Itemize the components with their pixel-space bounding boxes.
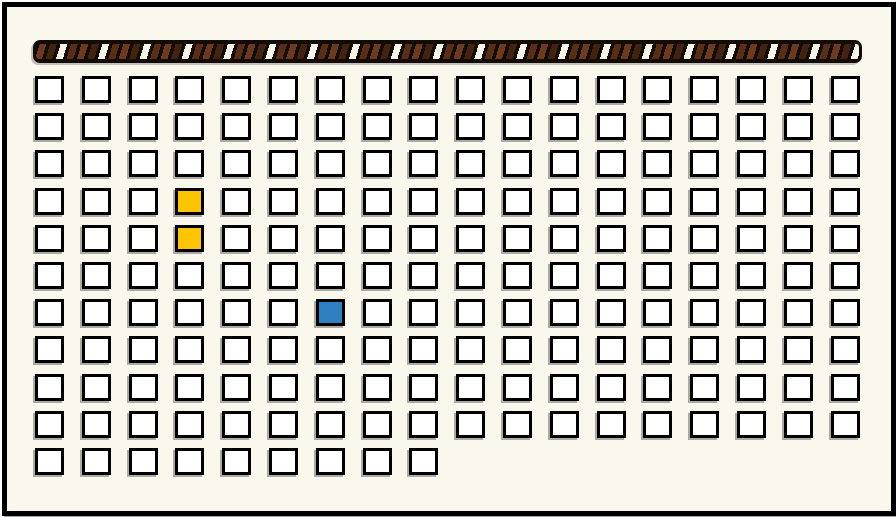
grid-cell[interactable]: [597, 299, 626, 326]
grid-cell[interactable]: [222, 448, 251, 475]
grid-cell[interactable]: [643, 150, 672, 177]
grid-cell[interactable]: [129, 113, 158, 140]
grid-cell[interactable]: [831, 299, 860, 326]
grid-cell[interactable]: [784, 374, 813, 401]
grid-cell[interactable]: [82, 374, 111, 401]
grid-cell[interactable]: [690, 113, 719, 140]
grid-cell[interactable]: [222, 113, 251, 140]
grid-cell[interactable]: [456, 299, 485, 326]
grid-cell[interactable]: [316, 225, 345, 252]
grid-cell[interactable]: [129, 262, 158, 289]
grid-cell[interactable]: [550, 262, 579, 289]
grid-cell[interactable]: [316, 374, 345, 401]
grid-cell[interactable]: [363, 262, 392, 289]
grid-cell[interactable]: [316, 76, 345, 103]
grid-cell[interactable]: [831, 225, 860, 252]
grid-cell[interactable]: [550, 113, 579, 140]
grid-cell[interactable]: [269, 448, 298, 475]
grid-cell[interactable]: [409, 225, 438, 252]
grid-cell[interactable]: [222, 76, 251, 103]
grid-cell[interactable]: [82, 225, 111, 252]
grid-cell[interactable]: [784, 225, 813, 252]
grid-cell[interactable]: [737, 262, 766, 289]
grid-cell[interactable]: [409, 448, 438, 475]
grid-cell[interactable]: [35, 188, 64, 215]
grid-cell[interactable]: [597, 225, 626, 252]
grid-cell[interactable]: [82, 336, 111, 363]
grid-cell[interactable]: [831, 374, 860, 401]
grid-cell[interactable]: [363, 374, 392, 401]
grid-cell[interactable]: [597, 76, 626, 103]
grid-cell[interactable]: [175, 150, 204, 177]
grid-cell[interactable]: [784, 411, 813, 438]
grid-cell[interactable]: [690, 150, 719, 177]
grid-cell[interactable]: [643, 262, 672, 289]
grid-cell[interactable]: [784, 76, 813, 103]
grid-cell[interactable]: [222, 411, 251, 438]
grid-cell[interactable]: [363, 113, 392, 140]
grid-cell[interactable]: [503, 113, 532, 140]
grid-cell[interactable]: [222, 150, 251, 177]
grid-cell[interactable]: [737, 188, 766, 215]
grid-cell[interactable]: [35, 299, 64, 326]
grid-cell[interactable]: [35, 225, 64, 252]
grid-cell[interactable]: [316, 336, 345, 363]
grid-cell[interactable]: [409, 411, 438, 438]
grid-cell[interactable]: [690, 76, 719, 103]
grid-cell[interactable]: [269, 411, 298, 438]
grid-cell[interactable]: [35, 150, 64, 177]
grid-cell[interactable]: [643, 225, 672, 252]
grid-cell[interactable]: [831, 76, 860, 103]
grid-cell[interactable]: [129, 374, 158, 401]
grid-cell[interactable]: [82, 411, 111, 438]
grid-cell[interactable]: [690, 262, 719, 289]
grid-cell[interactable]: [784, 299, 813, 326]
grid-cell[interactable]: [503, 188, 532, 215]
grid-cell[interactable]: [129, 299, 158, 326]
grid-cell[interactable]: [316, 150, 345, 177]
grid-cell[interactable]: [35, 262, 64, 289]
grid-cell[interactable]: [82, 448, 111, 475]
grid-cell[interactable]: [597, 262, 626, 289]
grid-cell[interactable]: [456, 225, 485, 252]
grid-cell[interactable]: [737, 299, 766, 326]
grid-cell[interactable]: [316, 411, 345, 438]
grid-cell[interactable]: [269, 262, 298, 289]
grid-cell[interactable]: [269, 113, 298, 140]
grid-cell[interactable]: [503, 299, 532, 326]
grid-cell[interactable]: [35, 411, 64, 438]
grid-cell[interactable]: [737, 374, 766, 401]
blue-cell[interactable]: [316, 299, 345, 326]
grid-cell[interactable]: [597, 411, 626, 438]
grid-cell[interactable]: [550, 411, 579, 438]
grid-cell[interactable]: [690, 188, 719, 215]
grid-cell[interactable]: [690, 411, 719, 438]
grid-cell[interactable]: [737, 76, 766, 103]
grid-cell[interactable]: [222, 336, 251, 363]
grid-cell[interactable]: [784, 188, 813, 215]
grid-cell[interactable]: [597, 113, 626, 140]
grid-cell[interactable]: [363, 150, 392, 177]
grid-cell[interactable]: [316, 262, 345, 289]
grid-cell[interactable]: [503, 411, 532, 438]
grid-cell[interactable]: [363, 448, 392, 475]
cell-grid: [7, 7, 891, 511]
grid-cell[interactable]: [409, 188, 438, 215]
grid-cell[interactable]: [503, 374, 532, 401]
grid-cell[interactable]: [82, 76, 111, 103]
grid-cell[interactable]: [363, 225, 392, 252]
grid-cell[interactable]: [409, 374, 438, 401]
grid-cell[interactable]: [363, 188, 392, 215]
grid-cell[interactable]: [175, 374, 204, 401]
grid-cell[interactable]: [409, 113, 438, 140]
grid-cell[interactable]: [129, 188, 158, 215]
grid-cell[interactable]: [35, 113, 64, 140]
grid-cell[interactable]: [550, 150, 579, 177]
grid-cell[interactable]: [222, 225, 251, 252]
grid-cell[interactable]: [456, 76, 485, 103]
grid-cell[interactable]: [690, 299, 719, 326]
grid-cell[interactable]: [316, 188, 345, 215]
grid-cell[interactable]: [503, 76, 532, 103]
grid-cell[interactable]: [409, 150, 438, 177]
grid-cell[interactable]: [690, 374, 719, 401]
grid-cell[interactable]: [269, 374, 298, 401]
grid-cell[interactable]: [222, 262, 251, 289]
grid-cell[interactable]: [831, 150, 860, 177]
grid-cell[interactable]: [35, 374, 64, 401]
grid-cell[interactable]: [175, 76, 204, 103]
grid-cell[interactable]: [503, 150, 532, 177]
grid-cell[interactable]: [503, 225, 532, 252]
grid-cell[interactable]: [175, 336, 204, 363]
yellow-cell[interactable]: [175, 225, 204, 252]
grid-cell[interactable]: [784, 150, 813, 177]
grid-cell[interactable]: [409, 336, 438, 363]
grid-cell[interactable]: [831, 113, 860, 140]
grid-cell[interactable]: [35, 448, 64, 475]
grid-cell[interactable]: [316, 113, 345, 140]
grid-cell[interactable]: [363, 411, 392, 438]
grid-cell[interactable]: [409, 262, 438, 289]
grid-cell[interactable]: [831, 188, 860, 215]
grid-cell[interactable]: [35, 336, 64, 363]
yellow-cell[interactable]: [175, 188, 204, 215]
grid-cell[interactable]: [269, 225, 298, 252]
grid-cell[interactable]: [831, 262, 860, 289]
grid-cell[interactable]: [316, 448, 345, 475]
grid-cell[interactable]: [175, 448, 204, 475]
grid-cell[interactable]: [175, 113, 204, 140]
grid-cell[interactable]: [82, 188, 111, 215]
grid-cell[interactable]: [269, 299, 298, 326]
grid-cell[interactable]: [269, 150, 298, 177]
grid-cell[interactable]: [456, 150, 485, 177]
grid-cell[interactable]: [643, 113, 672, 140]
grid-cell[interactable]: [82, 299, 111, 326]
grid-cell[interactable]: [222, 374, 251, 401]
grid-cell[interactable]: [737, 336, 766, 363]
grid-cell[interactable]: [269, 188, 298, 215]
grid-cell[interactable]: [175, 299, 204, 326]
grid-cell[interactable]: [643, 374, 672, 401]
grid-cell[interactable]: [831, 411, 860, 438]
grid-cell[interactable]: [222, 188, 251, 215]
grid-cell[interactable]: [129, 76, 158, 103]
grid-cell[interactable]: [269, 336, 298, 363]
grid-cell[interactable]: [550, 76, 579, 103]
grid-cell[interactable]: [550, 225, 579, 252]
grid-cell[interactable]: [550, 374, 579, 401]
grid-cell[interactable]: [690, 336, 719, 363]
grid-cell[interactable]: [503, 336, 532, 363]
grid-cell[interactable]: [35, 76, 64, 103]
grid-cell[interactable]: [456, 411, 485, 438]
grid-cell[interactable]: [643, 336, 672, 363]
grid-cell[interactable]: [129, 448, 158, 475]
grid-cell[interactable]: [690, 225, 719, 252]
grid-cell[interactable]: [409, 299, 438, 326]
grid-cell[interactable]: [643, 76, 672, 103]
stage: [0, 0, 896, 517]
grid-cell[interactable]: [269, 76, 298, 103]
board: [2, 2, 896, 516]
grid-cell[interactable]: [643, 188, 672, 215]
grid-cell[interactable]: [82, 113, 111, 140]
grid-cell[interactable]: [175, 262, 204, 289]
grid-cell[interactable]: [550, 299, 579, 326]
grid-cell[interactable]: [784, 262, 813, 289]
grid-cell[interactable]: [129, 411, 158, 438]
grid-cell[interactable]: [737, 113, 766, 140]
grid-cell[interactable]: [129, 336, 158, 363]
grid-cell[interactable]: [643, 411, 672, 438]
grid-cell[interactable]: [456, 113, 485, 140]
grid-cell[interactable]: [222, 299, 251, 326]
grid-cell[interactable]: [456, 188, 485, 215]
grid-cell[interactable]: [597, 374, 626, 401]
grid-cell[interactable]: [831, 336, 860, 363]
grid-cell[interactable]: [363, 76, 392, 103]
grid-cell[interactable]: [643, 299, 672, 326]
grid-cell[interactable]: [129, 150, 158, 177]
grid-cell[interactable]: [82, 262, 111, 289]
grid-cell[interactable]: [597, 336, 626, 363]
grid-cell[interactable]: [784, 336, 813, 363]
grid-cell[interactable]: [129, 225, 158, 252]
grid-cell[interactable]: [82, 150, 111, 177]
grid-cell[interactable]: [456, 336, 485, 363]
grid-cell[interactable]: [737, 150, 766, 177]
grid-cell[interactable]: [737, 411, 766, 438]
grid-cell[interactable]: [550, 336, 579, 363]
grid-cell[interactable]: [597, 150, 626, 177]
grid-cell[interactable]: [784, 113, 813, 140]
grid-cell[interactable]: [409, 76, 438, 103]
grid-cell[interactable]: [363, 299, 392, 326]
grid-cell[interactable]: [175, 411, 204, 438]
grid-cell[interactable]: [550, 188, 579, 215]
grid-cell[interactable]: [737, 225, 766, 252]
grid-cell[interactable]: [597, 188, 626, 215]
grid-cell[interactable]: [503, 262, 532, 289]
grid-cell[interactable]: [363, 336, 392, 363]
grid-cell[interactable]: [456, 374, 485, 401]
grid-cell[interactable]: [456, 262, 485, 289]
